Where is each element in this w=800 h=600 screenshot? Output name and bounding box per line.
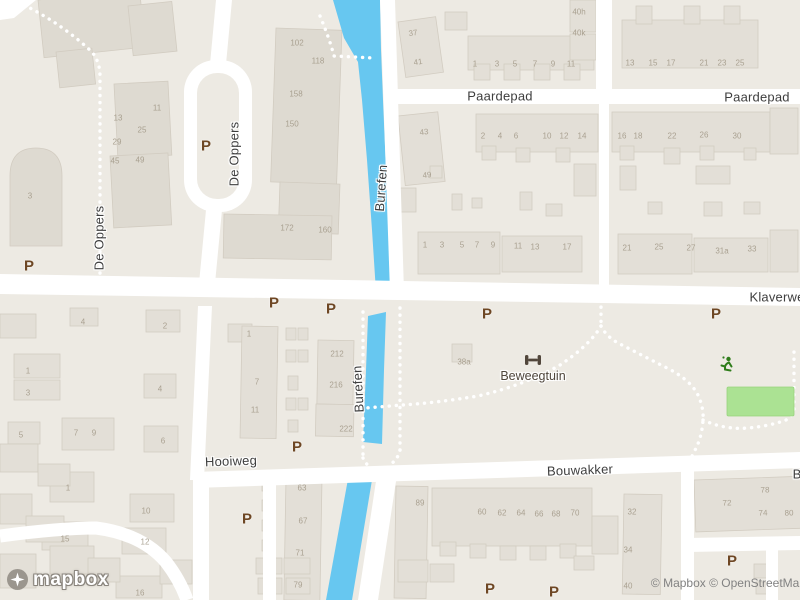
house-number: 17 <box>563 243 572 252</box>
house-number: 62 <box>498 509 507 518</box>
house-number: 160 <box>318 226 331 235</box>
house-number: 71 <box>296 549 305 558</box>
poi-label-beweegtuin: Beweegtuin <box>500 369 565 383</box>
house-number: 7 <box>533 60 537 69</box>
house-number: 3 <box>495 60 499 69</box>
map-tiles <box>0 0 800 600</box>
house-number: 16 <box>136 589 145 598</box>
house-number: 11 <box>153 104 161 113</box>
street-label-de-oppers: De Oppers <box>227 122 242 187</box>
house-number: 3 <box>440 241 444 250</box>
house-number: 15 <box>649 59 658 68</box>
house-number: 5 <box>460 241 464 250</box>
mapbox-logo-text: mapbox <box>33 569 109 591</box>
house-number: 64 <box>517 509 526 518</box>
house-number: 21 <box>700 59 709 68</box>
house-number: 7 <box>475 241 479 250</box>
house-number: 74 <box>758 508 767 517</box>
street-label-burefen: Burefen <box>349 365 366 413</box>
house-number: 33 <box>748 245 757 254</box>
parking-marker: P <box>269 295 279 312</box>
house-number: 45 <box>111 157 120 166</box>
street-label-b: B <box>793 467 800 482</box>
house-number: 1 <box>473 60 477 69</box>
house-number: 18 <box>634 132 643 141</box>
house-number: 15 <box>61 535 70 544</box>
house-number: 40k <box>573 29 586 38</box>
house-number: 9 <box>491 241 495 250</box>
map-canvas[interactable]: PaardepadPaardepadKlaverweDe OppersDe Op… <box>0 0 800 600</box>
house-number: 25 <box>736 59 745 68</box>
house-number: 158 <box>289 90 302 99</box>
house-number: 25 <box>138 126 147 135</box>
house-number: 26 <box>700 131 709 140</box>
house-number: 27 <box>687 244 696 253</box>
parking-marker: P <box>326 301 336 318</box>
house-number: 89 <box>416 499 425 508</box>
house-number: 172 <box>280 224 293 233</box>
house-number: 32 <box>628 508 637 517</box>
street-label-klaverwe: Klaverwe <box>749 290 800 305</box>
house-number: 150 <box>285 120 298 129</box>
house-number: 23 <box>718 59 727 68</box>
house-number: 13 <box>531 243 540 252</box>
house-number: 212 <box>330 350 343 359</box>
house-number: 49 <box>422 170 432 180</box>
parking-marker: P <box>549 584 559 600</box>
house-number: 12 <box>141 538 150 547</box>
house-number: 6 <box>514 132 518 141</box>
house-number: 9 <box>551 60 555 69</box>
parking-marker: P <box>242 511 252 528</box>
house-number: 29 <box>113 138 122 147</box>
house-number: 16 <box>618 132 627 141</box>
map-attribution[interactable]: © Mapbox © OpenStreetMap <box>651 576 800 590</box>
house-number: 30 <box>733 132 742 141</box>
house-number: 70 <box>571 509 580 518</box>
house-number: 1 <box>66 484 70 493</box>
street-label-hooiweg: Hooiweg <box>205 453 257 470</box>
house-number: 67 <box>299 517 308 526</box>
house-number: 5 <box>19 431 23 440</box>
parking-marker: P <box>711 306 721 323</box>
sports-person-icon <box>719 356 733 378</box>
house-number: 11 <box>567 60 575 69</box>
mapbox-logo[interactable]: mapbox <box>6 568 109 591</box>
house-number: 9 <box>92 429 96 438</box>
house-number: 102 <box>290 39 303 48</box>
house-number: 68 <box>552 510 561 519</box>
house-number: 13 <box>114 114 123 123</box>
street-label-paardepad: Paardepad <box>467 89 532 104</box>
house-number: 60 <box>478 508 487 517</box>
house-number: 13 <box>626 59 635 68</box>
house-number: 1 <box>423 241 427 250</box>
parking-marker: P <box>24 258 34 275</box>
house-number: 222 <box>339 425 352 434</box>
house-number: 1 <box>247 330 251 339</box>
house-number: 6 <box>161 437 165 446</box>
house-number: 7 <box>74 429 78 438</box>
street-label-bouwakker: Bouwakker <box>547 461 614 478</box>
house-number: 43 <box>419 127 429 137</box>
house-number: 7 <box>255 378 259 387</box>
house-number: 4 <box>158 385 162 394</box>
house-number: 66 <box>535 510 544 519</box>
house-number: 4 <box>81 318 85 327</box>
house-number: 118 <box>312 57 325 66</box>
house-number: 40h <box>572 8 585 17</box>
house-number: 22 <box>668 132 677 141</box>
house-number: 72 <box>722 498 731 507</box>
house-number: 12 <box>560 132 569 141</box>
house-number: 3 <box>26 389 30 398</box>
parking-marker: P <box>201 138 211 155</box>
street-label-de-oppers: De Oppers <box>92 206 107 271</box>
house-number: 40 <box>624 582 633 591</box>
house-number: 1 <box>26 367 30 376</box>
house-number: 79 <box>294 581 303 590</box>
house-number: 80 <box>784 508 793 517</box>
mapbox-logo-icon <box>6 568 29 591</box>
house-number: 49 <box>136 156 145 165</box>
house-number: 14 <box>578 132 587 141</box>
dumbbell-icon <box>524 352 542 370</box>
house-number: 21 <box>623 244 632 253</box>
house-number: 17 <box>667 59 676 68</box>
sports-field <box>727 387 794 416</box>
house-number: 3 <box>28 192 32 201</box>
parking-marker: P <box>482 306 492 323</box>
house-number: 11 <box>514 242 522 251</box>
house-number: 41 <box>413 57 423 67</box>
house-number: 31a <box>715 247 728 256</box>
house-number: 2 <box>163 322 167 331</box>
house-number: 38a <box>457 358 470 367</box>
house-number: 4 <box>498 132 502 141</box>
house-number: 34 <box>624 546 633 555</box>
house-number: 25 <box>655 243 664 252</box>
house-number: 216 <box>329 381 342 390</box>
street-label-paardepad: Paardepad <box>724 90 789 105</box>
house-number: 10 <box>142 507 151 516</box>
house-number: 11 <box>251 406 259 415</box>
house-number: 5 <box>513 60 517 69</box>
parking-marker: P <box>292 439 302 456</box>
house-number: 63 <box>298 484 307 493</box>
house-number: 10 <box>543 132 552 141</box>
house-number: 78 <box>760 485 769 494</box>
parking-marker: P <box>727 553 737 570</box>
house-number: 37 <box>408 28 418 38</box>
parking-marker: P <box>485 581 495 598</box>
house-number: 2 <box>481 132 485 141</box>
